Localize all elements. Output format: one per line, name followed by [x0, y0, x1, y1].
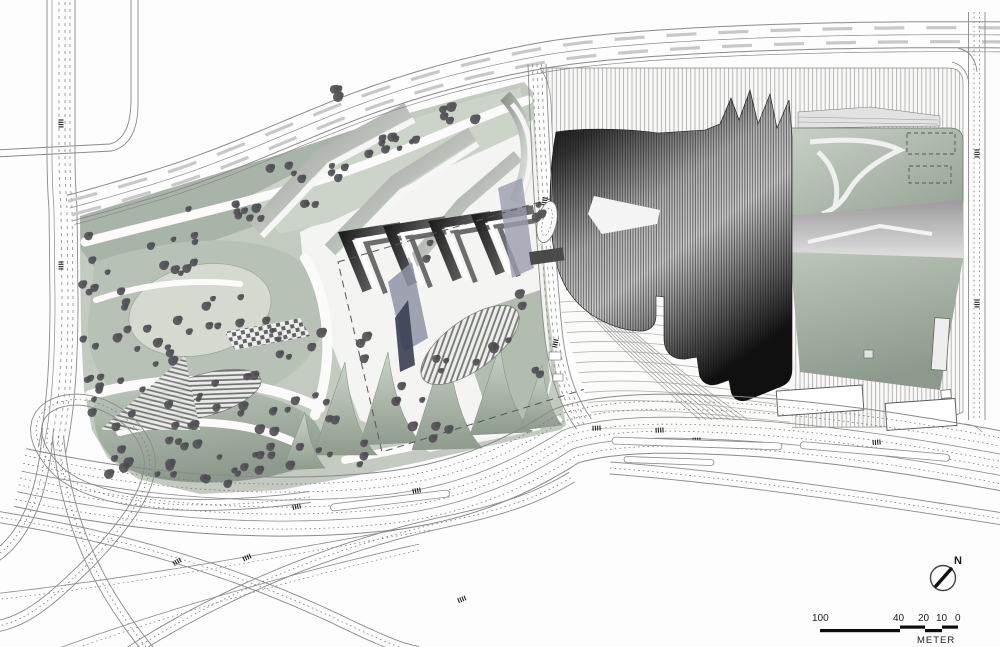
site-plan-drawing: N 100 40 20 10 0 METER [0, 0, 1000, 647]
scale-label-10: 10 [936, 613, 948, 624]
scale-label-100: 100 [812, 613, 829, 624]
north-arrow: N [931, 555, 963, 591]
scale-label-0: 0 [955, 613, 961, 624]
scale-bar: 100 40 20 10 0 METER [812, 613, 961, 646]
scale-bar-segments [820, 626, 958, 633]
north-label: N [954, 555, 962, 567]
scale-unit-label: METER [917, 635, 955, 646]
scale-label-40: 40 [893, 613, 905, 624]
south-building-2 [885, 399, 957, 431]
scale-label-20: 20 [918, 613, 930, 624]
site-plan-page: N 100 40 20 10 0 METER [0, 0, 1000, 647]
tree [104, 469, 114, 479]
slope-slab-building [931, 318, 950, 371]
